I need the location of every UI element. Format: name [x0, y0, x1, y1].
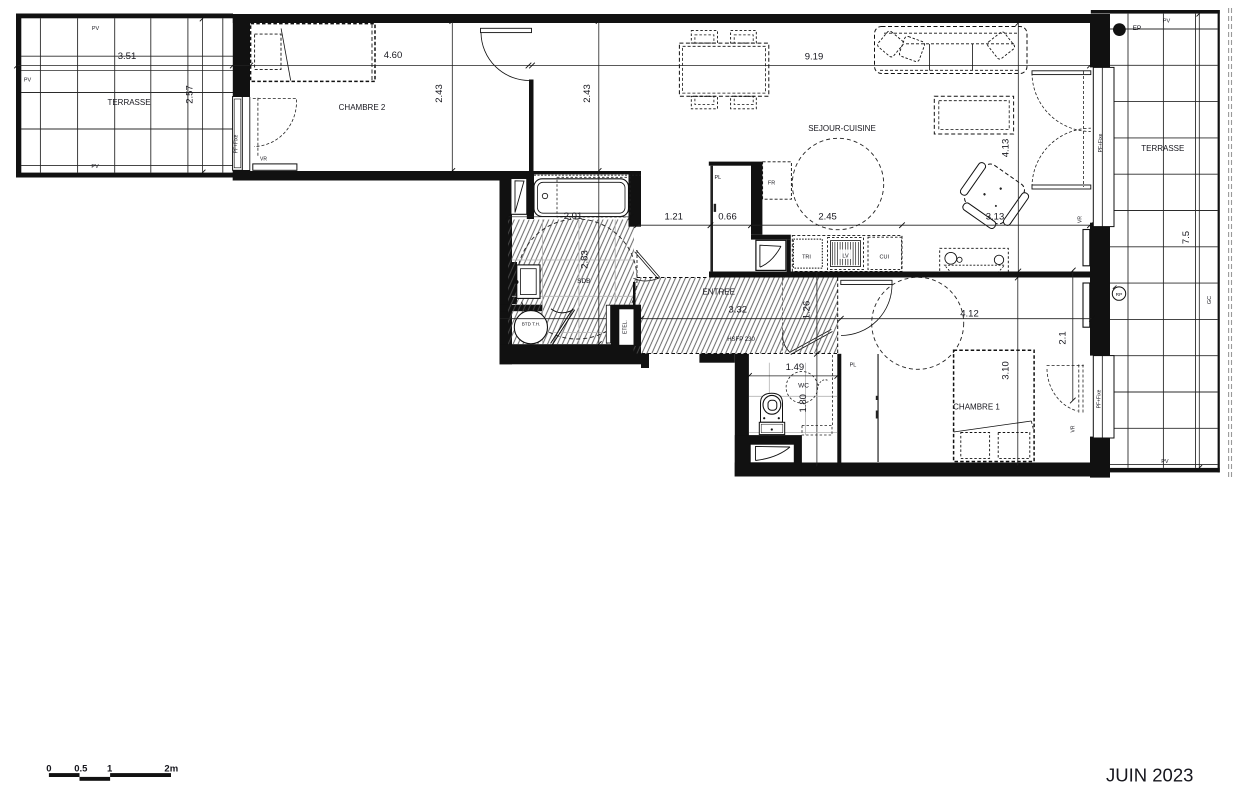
svg-text:PF+Fixe: PF+Fixe [1098, 133, 1104, 152]
svg-text:ENTREE: ENTREE [702, 287, 734, 296]
svg-text:3.13: 3.13 [986, 212, 1005, 223]
svg-text:0.66: 0.66 [718, 212, 737, 223]
svg-text:2m: 2m [164, 764, 178, 775]
svg-text:2.43: 2.43 [582, 84, 593, 103]
svg-text:PV: PV [1161, 459, 1169, 465]
svg-text:PV: PV [92, 26, 100, 32]
svg-text:TERRASSE: TERRASSE [107, 98, 150, 107]
svg-text:FR: FR [768, 181, 775, 187]
svg-text:VR: VR [260, 157, 267, 163]
svg-text:VR: VR [1071, 425, 1077, 432]
svg-text:SEJOUR-CUISINE: SEJOUR-CUISINE [808, 124, 876, 133]
svg-text:PL: PL [850, 363, 857, 369]
svg-text:2.45: 2.45 [818, 212, 837, 223]
svg-text:TRI: TRI [802, 255, 811, 261]
svg-text:9.19: 9.19 [805, 52, 824, 63]
svg-text:4.60: 4.60 [384, 50, 403, 61]
svg-text:SDB: SDB [577, 278, 590, 285]
svg-text:7.5: 7.5 [1181, 231, 1192, 244]
svg-text:JUIN 2023: JUIN 2023 [1106, 765, 1193, 786]
svg-text:VR: VR [1078, 216, 1084, 223]
svg-text:2.83: 2.83 [579, 250, 590, 269]
svg-text:LV: LV [842, 254, 849, 260]
svg-text:2.43: 2.43 [434, 84, 445, 103]
svg-text:CHAMBRE 1: CHAMBRE 1 [953, 403, 1000, 412]
svg-text:WC: WC [798, 382, 809, 389]
svg-text:4.13: 4.13 [1001, 139, 1012, 158]
svg-text:PV: PV [91, 164, 99, 170]
svg-text:2.1: 2.1 [1058, 331, 1069, 344]
svg-text:PV: PV [24, 77, 32, 83]
svg-text:EP: EP [1133, 25, 1142, 32]
svg-text:PV: PV [1163, 19, 1171, 25]
svg-text:1.49: 1.49 [786, 362, 805, 373]
svg-text:0: 0 [46, 764, 51, 775]
svg-text:3.51: 3.51 [118, 51, 137, 62]
svg-text:ETEL.: ETEL. [623, 320, 629, 334]
svg-text:GC: GC [1207, 296, 1213, 304]
svg-text:PF+Fixe: PF+Fixe [1097, 389, 1103, 408]
svg-text:1: 1 [107, 764, 113, 775]
svg-text:TERRASSE: TERRASSE [1141, 144, 1184, 153]
svg-text:PF+Fixe: PF+Fixe [233, 134, 239, 153]
svg-text:PL: PL [715, 175, 722, 181]
svg-text:2.57: 2.57 [184, 85, 195, 104]
svg-text:1.80: 1.80 [798, 394, 809, 413]
svg-text:1.21: 1.21 [664, 212, 683, 223]
svg-text:0.5: 0.5 [74, 764, 88, 775]
svg-text:3.10: 3.10 [1001, 361, 1012, 380]
svg-text:4.12: 4.12 [960, 308, 979, 319]
svg-text:CHAMBRE 2: CHAMBRE 2 [339, 103, 386, 112]
svg-text:BTD T.H.: BTD T.H. [522, 321, 541, 326]
svg-text:HSFP 230: HSFP 230 [727, 337, 755, 343]
svg-text:1.26: 1.26 [802, 301, 813, 320]
svg-text:RP: RP [1116, 292, 1123, 298]
svg-text:CUI: CUI [880, 255, 890, 261]
svg-text:3.32: 3.32 [729, 304, 748, 315]
